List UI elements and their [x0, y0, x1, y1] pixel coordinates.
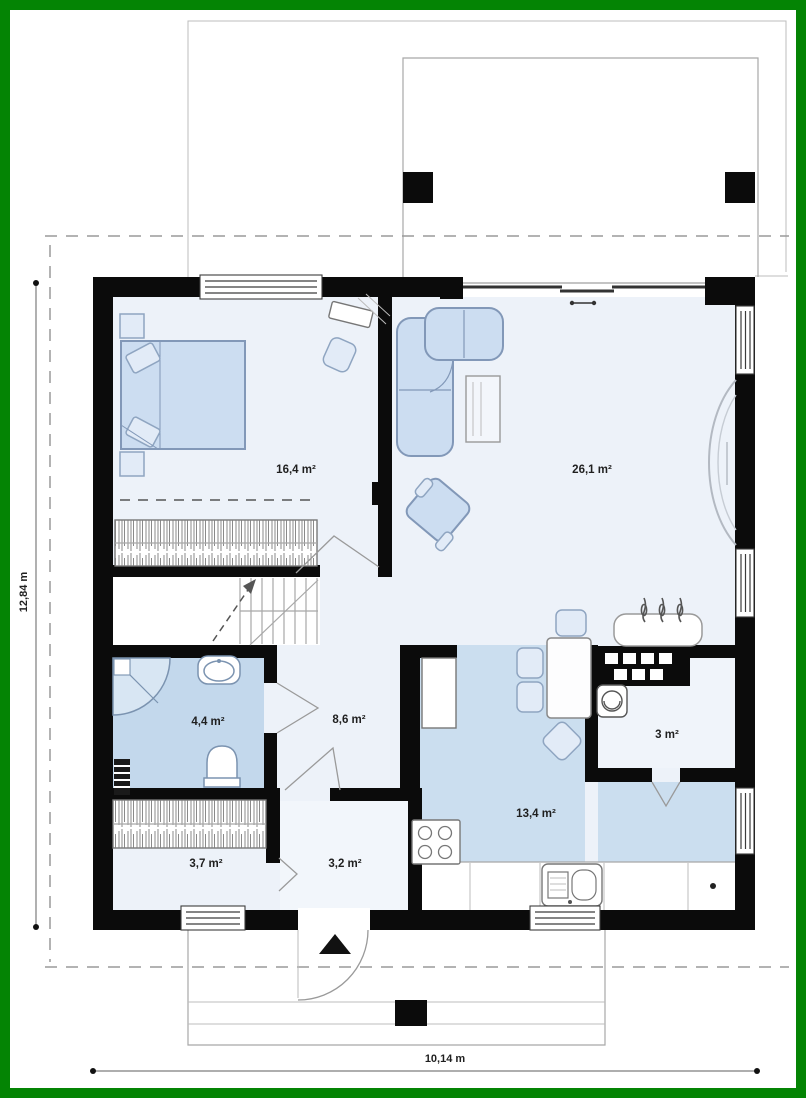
room-area-label: 3 m²	[655, 729, 679, 741]
window-icon	[200, 275, 322, 299]
room-wardrobe	[113, 800, 266, 848]
sink-icon	[542, 864, 602, 906]
coffee-table-icon	[466, 376, 500, 442]
room-area-label: 16,4 m²	[276, 464, 316, 476]
room-area-label: 4,4 m²	[191, 716, 224, 728]
window-icon	[736, 306, 754, 374]
dining-chair-icon	[517, 682, 543, 712]
dining-table-icon	[547, 638, 591, 718]
radiator-icon	[114, 759, 130, 795]
window-icon	[736, 549, 754, 617]
terrace-column	[725, 172, 755, 203]
room-area-label: 8,6 m²	[332, 714, 365, 726]
hanging-rail-icon	[113, 800, 266, 848]
window-icon	[530, 906, 600, 930]
room-area-label: 3,2 m²	[328, 858, 361, 870]
terrace-column	[403, 172, 433, 203]
nightstand-icon	[120, 452, 144, 476]
room-pantry	[597, 685, 627, 717]
room-area-label: 26,1 m²	[572, 464, 612, 476]
room-area-label: 13,4 m²	[516, 808, 556, 820]
window-icon	[736, 788, 754, 854]
wardrobe-icon	[115, 520, 317, 566]
washbasin-icon	[198, 656, 240, 684]
room-area-label: 3,7 m²	[189, 858, 222, 870]
toilet-icon	[204, 746, 240, 787]
boiler-icon	[597, 685, 627, 717]
nightstand-icon	[120, 314, 144, 338]
stove-icon	[412, 820, 460, 864]
kitchen-fill-right	[598, 782, 735, 862]
floor-plan-image: 16,4 m² 26,1 m² 4,4 m² 8,6 m² 3 m² 13,4 …	[0, 0, 806, 1098]
floor-plan-canvas: 16,4 m² 26,1 m² 4,4 m² 8,6 m² 3 m² 13,4 …	[0, 0, 806, 1098]
dining-chair-icon	[517, 648, 543, 678]
chimney-icon	[596, 646, 690, 686]
window-icon	[181, 906, 245, 930]
tall-cabinet-icon	[422, 658, 456, 728]
vestibule-fill	[280, 801, 408, 910]
dimension-height-label: 12,84 m	[18, 572, 30, 613]
drain-dot	[710, 883, 716, 889]
dimension-width-label: 10,14 m	[425, 1053, 466, 1065]
porch-column	[395, 1000, 427, 1026]
dining-chair-icon	[556, 610, 586, 636]
